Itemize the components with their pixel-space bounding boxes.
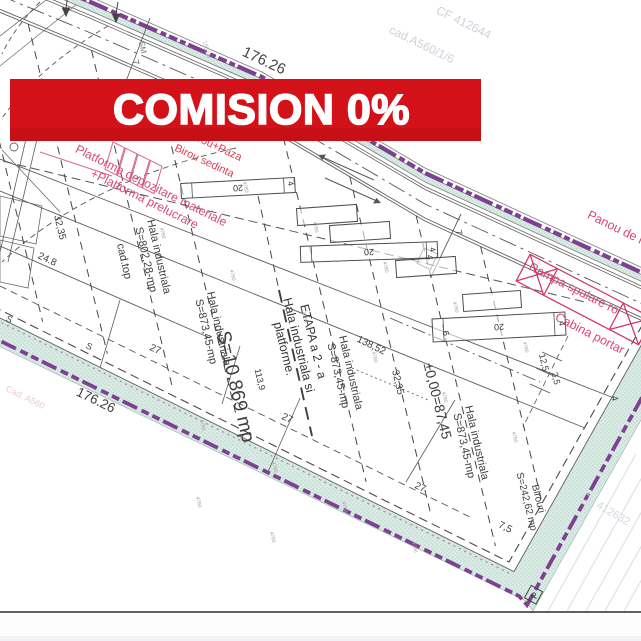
- svg-text:20: 20: [494, 322, 505, 333]
- svg-text:20: 20: [364, 247, 374, 257]
